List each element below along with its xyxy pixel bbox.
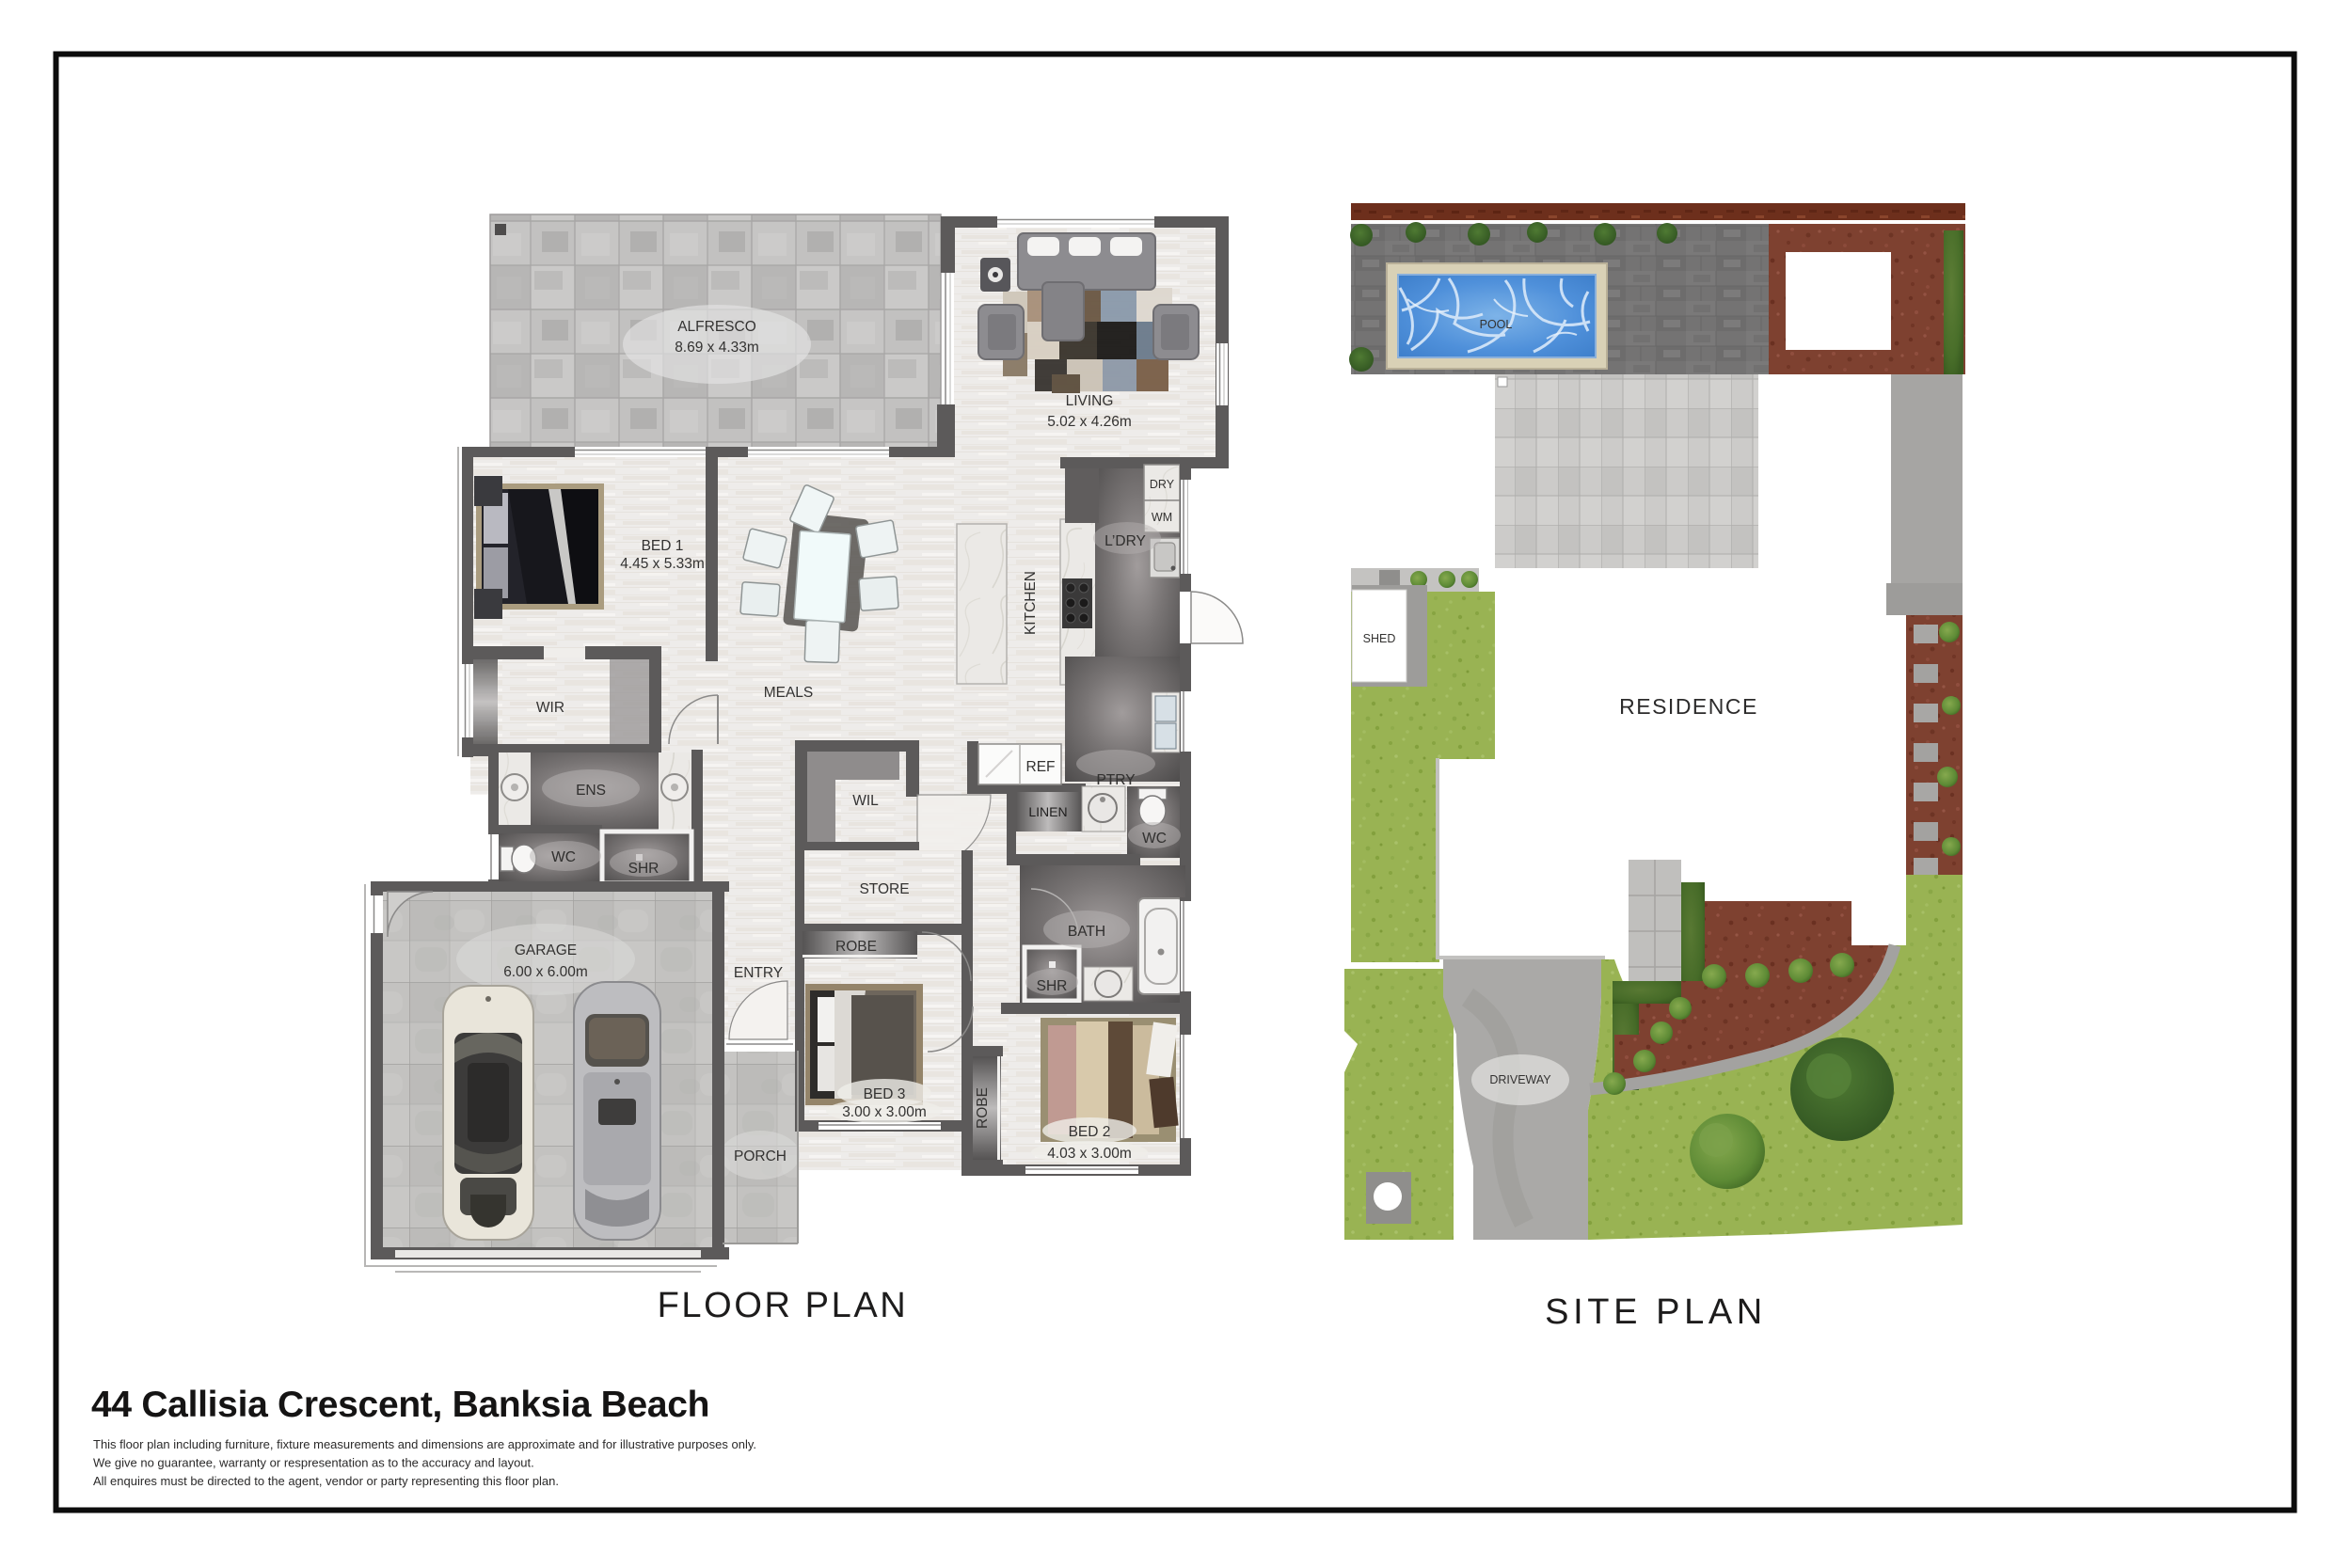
svg-text:3.00 x 3.00m: 3.00 x 3.00m — [842, 1104, 927, 1120]
svg-text:4.45 x 5.33m: 4.45 x 5.33m — [620, 556, 705, 572]
svg-text:LIVING: LIVING — [1066, 393, 1114, 409]
svg-text:BED 2: BED 2 — [1069, 1124, 1111, 1140]
svg-text:BATH: BATH — [1068, 924, 1105, 940]
svg-text:REF: REF — [1026, 759, 1056, 775]
svg-text:RESIDENCE: RESIDENCE — [1619, 694, 1758, 719]
svg-text:ROBE: ROBE — [835, 939, 877, 955]
svg-text:SITE PLAN: SITE PLAN — [1545, 1292, 1767, 1332]
svg-text:LINEN: LINEN — [1028, 804, 1067, 819]
svg-text:WC: WC — [1142, 831, 1167, 847]
svg-text:STORE: STORE — [859, 881, 909, 897]
svg-text:BED 3: BED 3 — [864, 1086, 906, 1102]
svg-text:WM: WM — [1152, 511, 1172, 524]
svg-text:PTRY: PTRY — [1096, 772, 1135, 788]
svg-text:ENS: ENS — [576, 783, 606, 799]
svg-text:44 Callisia Crescent, Banksia: 44 Callisia Crescent, Banksia Beach — [91, 1385, 709, 1425]
svg-text:DRY: DRY — [1150, 478, 1175, 491]
svg-text:We give no guarantee, warranty: We give no guarantee, warranty or respre… — [93, 1456, 534, 1470]
svg-text:GARAGE: GARAGE — [515, 942, 577, 958]
svg-text:ROBE: ROBE — [975, 1087, 991, 1129]
svg-text:POOL: POOL — [1480, 318, 1513, 331]
svg-text:All enquires must be directed: All enquires must be directed to the age… — [93, 1474, 559, 1488]
svg-text:MEALS: MEALS — [764, 685, 814, 701]
svg-text:4.03 x 3.00m: 4.03 x 3.00m — [1047, 1146, 1132, 1162]
svg-text:WIR: WIR — [536, 700, 564, 716]
svg-text:L’DRY: L’DRY — [1104, 533, 1146, 549]
svg-text:BED 1: BED 1 — [642, 538, 684, 554]
svg-text:5.02 x 4.26m: 5.02 x 4.26m — [1047, 414, 1132, 430]
svg-text:This floor plan including furn: This floor plan including furniture, fix… — [93, 1437, 756, 1451]
svg-text:SHR: SHR — [1037, 978, 1068, 994]
svg-text:WC: WC — [551, 849, 576, 865]
svg-text:ENTRY: ENTRY — [734, 965, 783, 981]
svg-text:KITCHEN: KITCHEN — [1023, 571, 1039, 635]
svg-text:ALFRESCO: ALFRESCO — [677, 319, 756, 335]
svg-text:SHED: SHED — [1363, 632, 1396, 645]
svg-text:FLOOR PLAN: FLOOR PLAN — [658, 1286, 909, 1325]
svg-text:SHR: SHR — [628, 861, 660, 877]
svg-text:6.00 x 6.00m: 6.00 x 6.00m — [503, 964, 588, 980]
svg-text:WIL: WIL — [852, 793, 879, 809]
svg-text:DRIVEWAY: DRIVEWAY — [1489, 1073, 1551, 1086]
svg-text:8.69 x 4.33m: 8.69 x 4.33m — [675, 340, 759, 356]
svg-text:PORCH: PORCH — [734, 1148, 787, 1164]
